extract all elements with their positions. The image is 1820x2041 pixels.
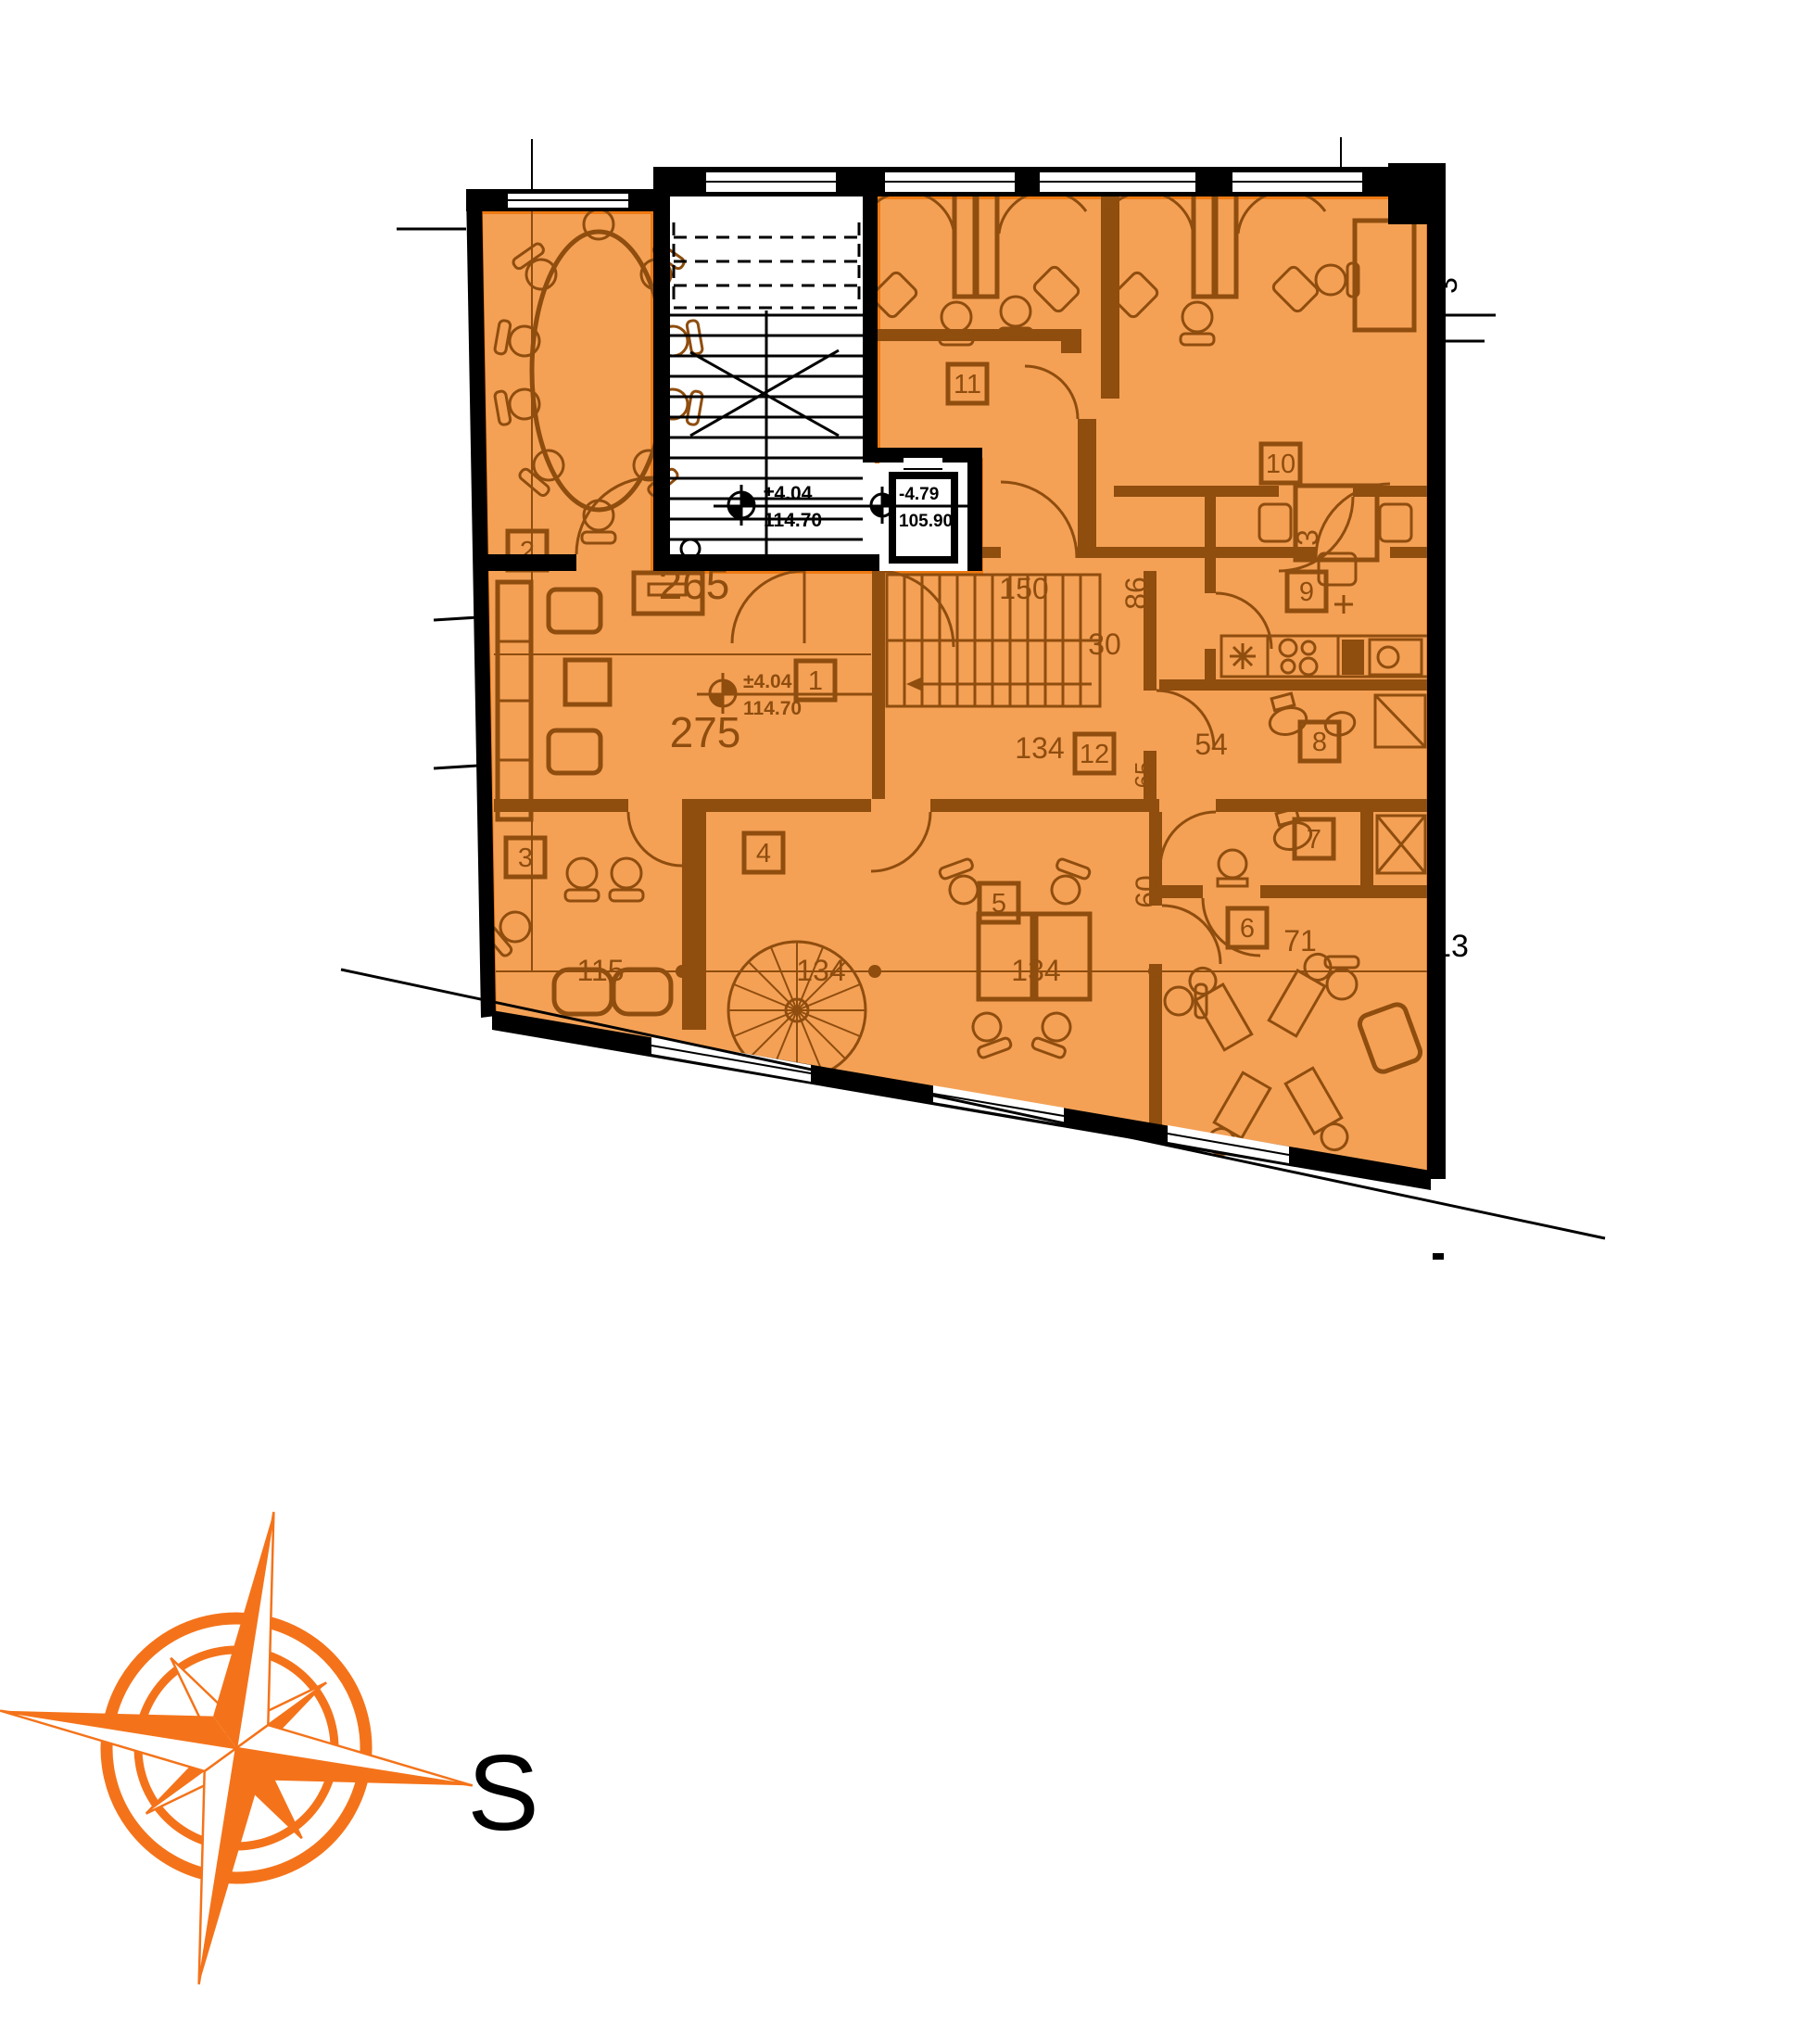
room-tag-12: 12: [1075, 734, 1114, 773]
svg-text:105.90: 105.90: [899, 512, 953, 531]
dim-134-right: 134: [1011, 954, 1060, 987]
svg-text:4: 4: [756, 839, 771, 868]
dim-71: 71: [1283, 924, 1317, 957]
svg-text:5: 5: [992, 889, 1006, 919]
svg-text:±4.04: ±4.04: [764, 483, 813, 504]
dim-3-edge: 3: [1430, 277, 1463, 294]
svg-text:11: 11: [954, 370, 981, 399]
dim-115: 115: [576, 954, 624, 987]
main-stairwell: [670, 222, 863, 558]
svg-text:10: 10: [1266, 450, 1295, 479]
svg-text:7: 7: [1307, 825, 1321, 855]
svg-text:114.70: 114.70: [743, 698, 802, 719]
svg-text:6: 6: [1240, 914, 1255, 944]
dim-3-dining: 3: [1291, 529, 1324, 546]
dim-65: 65: [1130, 762, 1157, 789]
dim-150: 150: [999, 572, 1048, 605]
dim-86: 86: [1119, 577, 1153, 610]
svg-text:3: 3: [518, 843, 533, 873]
svg-text:-4.79: -4.79: [899, 485, 939, 504]
dim-134-mid: 134: [1015, 731, 1064, 765]
room-tag-11: 11: [948, 364, 987, 403]
floor-plan-page: 265 275 150 30 86 134 54 65 60 115 134 1…: [0, 0, 1820, 2041]
svg-text:114.70: 114.70: [764, 510, 822, 531]
dim-54: 54: [1194, 728, 1228, 761]
compass-north-label: S: [467, 1732, 538, 1853]
dishwasher-icon: [1342, 640, 1364, 675]
room-tag-10: 10: [1261, 444, 1300, 483]
dim-13: 13: [1434, 929, 1469, 964]
compass-rose: S: [0, 1475, 539, 2022]
dim-30: 30: [1088, 628, 1121, 661]
level-marker-stair: ±4.04 114.70: [714, 483, 878, 531]
dim-60: 60: [1130, 875, 1163, 908]
extractor-fan-icon: [1230, 643, 1256, 669]
svg-text:9: 9: [1299, 577, 1314, 607]
svg-text:12: 12: [1080, 740, 1109, 769]
dim-275: 275: [670, 708, 741, 756]
dim-134-left: 134: [796, 954, 845, 987]
svg-text:8: 8: [1312, 728, 1327, 757]
svg-text:±4.04: ±4.04: [743, 671, 792, 692]
floor-plan-drawing: 265 275 150 30 86 134 54 65 60 115 134 1…: [0, 0, 1820, 2041]
svg-text:1: 1: [808, 666, 823, 696]
compass-long-points: [0, 1475, 510, 2022]
